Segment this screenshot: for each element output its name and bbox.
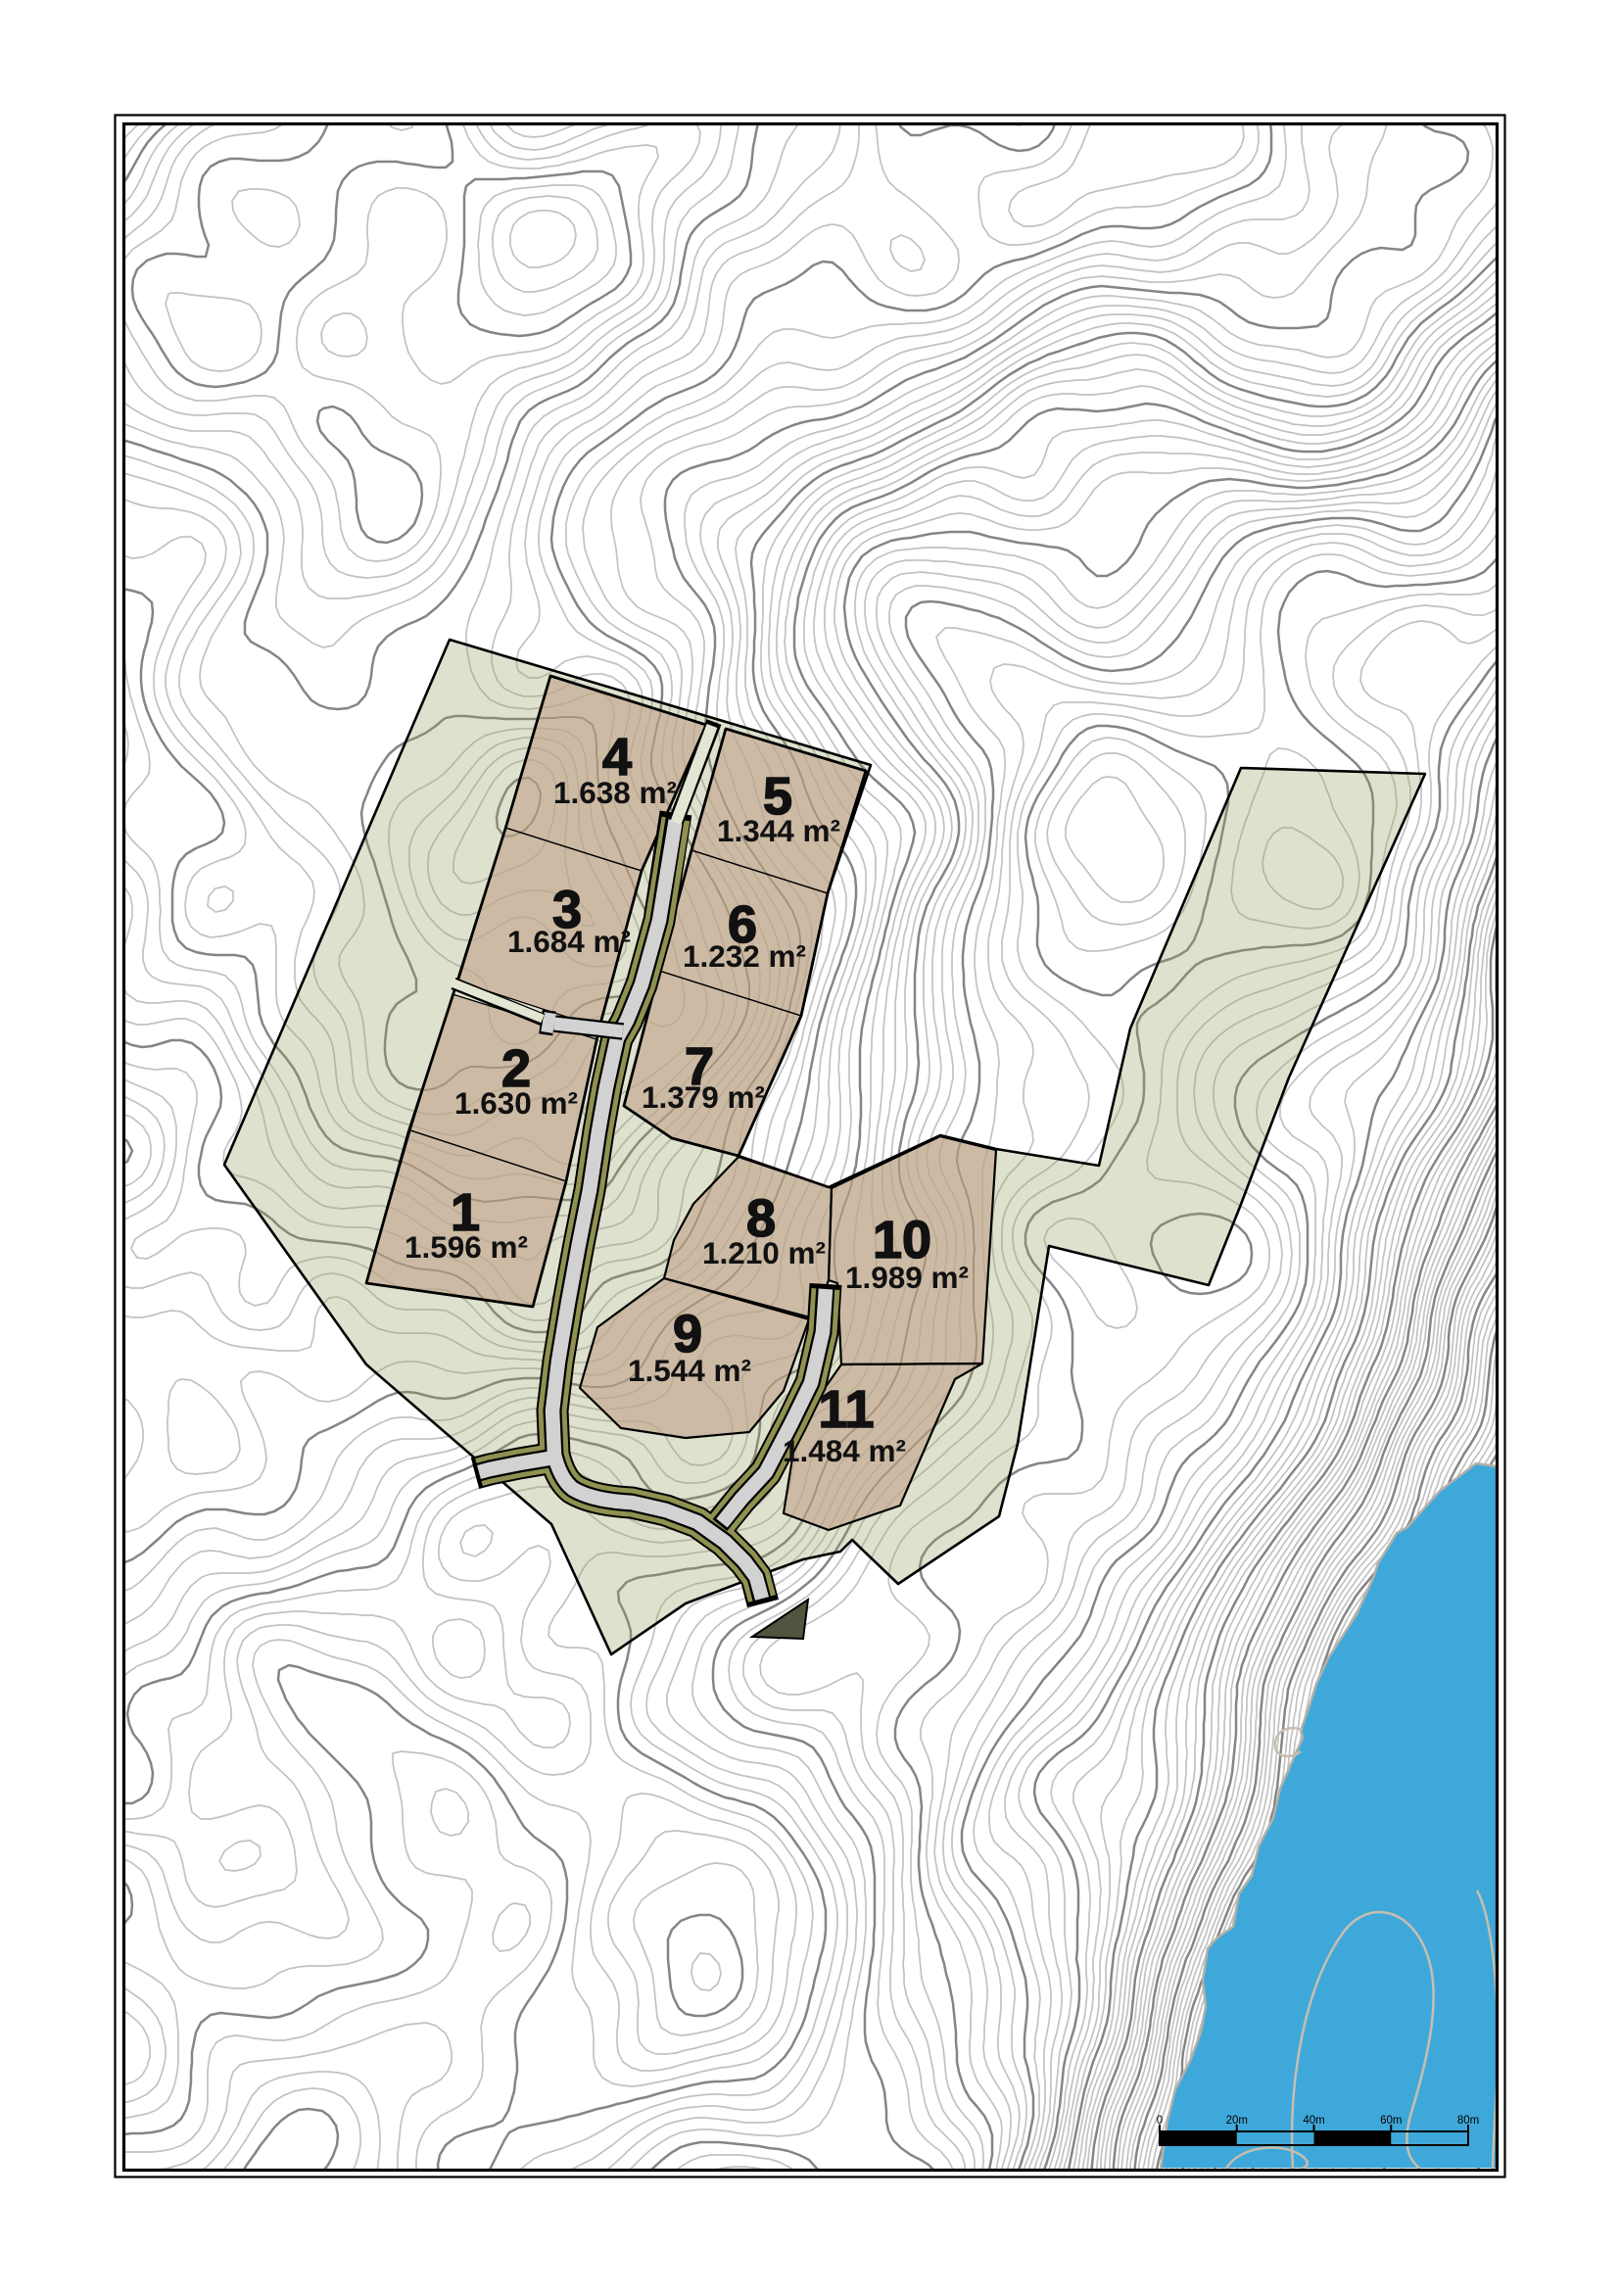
svg-text:1.232 m²: 1.232 m² xyxy=(683,938,806,974)
svg-text:1.484 m²: 1.484 m² xyxy=(783,1433,906,1468)
svg-text:0: 0 xyxy=(1157,2115,1163,2127)
svg-text:1.544 m²: 1.544 m² xyxy=(628,1353,751,1388)
svg-text:11: 11 xyxy=(818,1380,874,1439)
svg-text:40m: 40m xyxy=(1303,2115,1324,2127)
svg-text:1.630 m²: 1.630 m² xyxy=(454,1085,578,1121)
svg-text:1.596 m²: 1.596 m² xyxy=(405,1229,528,1265)
svg-text:1.989 m²: 1.989 m² xyxy=(845,1260,969,1295)
svg-text:1.344 m²: 1.344 m² xyxy=(717,813,840,848)
svg-text:1.379 m²: 1.379 m² xyxy=(642,1079,765,1115)
svg-text:80m: 80m xyxy=(1457,2115,1479,2127)
svg-text:1.210 m²: 1.210 m² xyxy=(702,1235,826,1270)
svg-text:20m: 20m xyxy=(1226,2115,1248,2127)
svg-text:1.684 m²: 1.684 m² xyxy=(507,924,631,959)
svg-text:1.638 m²: 1.638 m² xyxy=(553,775,677,810)
svg-text:60m: 60m xyxy=(1380,2115,1402,2127)
